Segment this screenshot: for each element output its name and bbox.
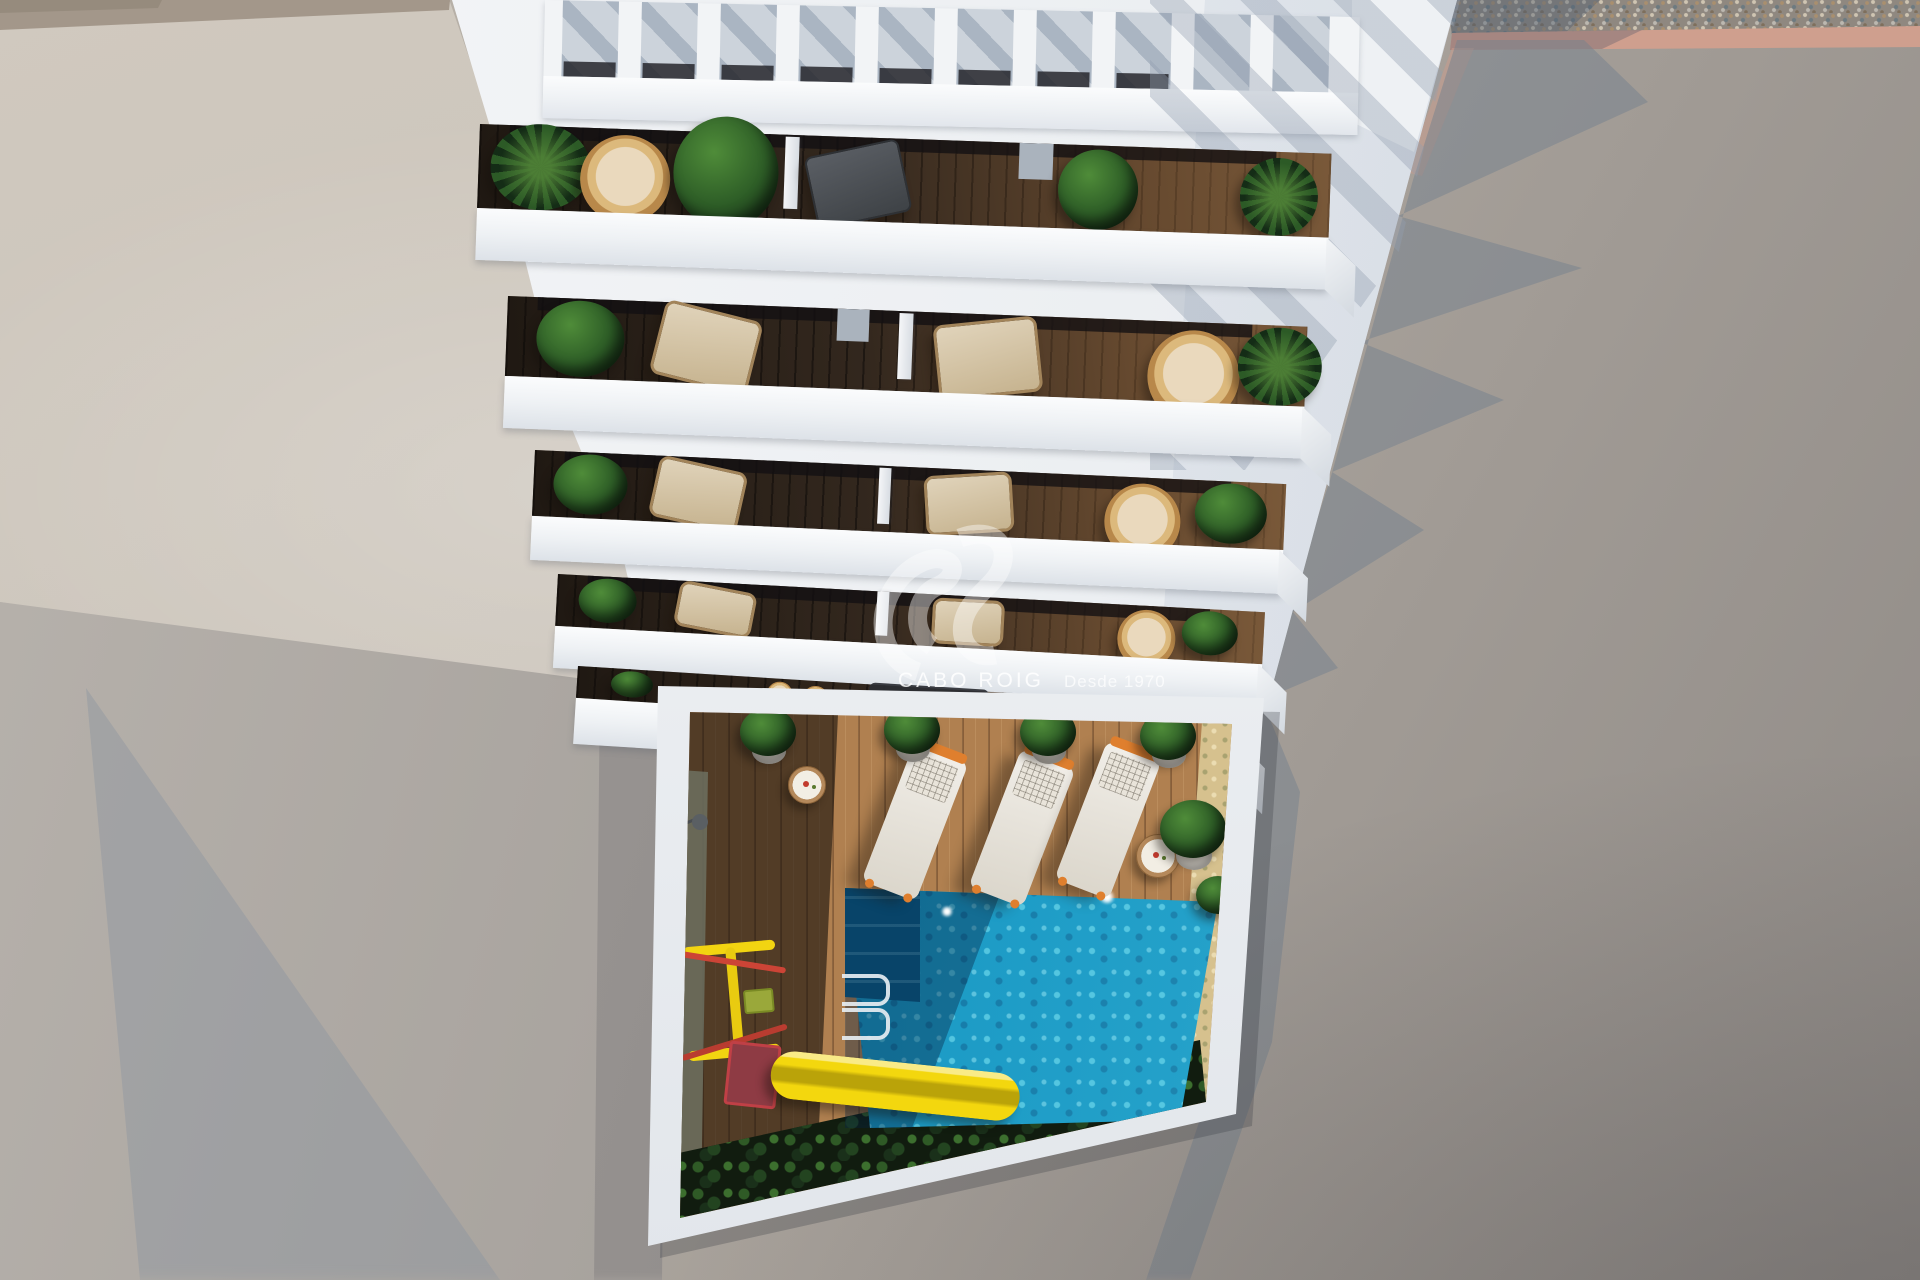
pool-ladder-icon — [842, 1008, 890, 1040]
pool-ladder-icon — [842, 974, 890, 1006]
pergola-slat-gap — [640, 2, 698, 79]
balcony-divider — [877, 468, 892, 524]
pergola-slat-gap — [956, 9, 1014, 86]
lounger-pillow — [1097, 750, 1152, 801]
pergola-slat-gap — [798, 5, 856, 82]
pergola-slat-gap — [719, 4, 777, 81]
deck-chair — [932, 315, 1043, 401]
side-table — [788, 766, 826, 804]
render-scene: CABO ROIG Desde 1970 — [0, 0, 1920, 1280]
potted-plant — [1160, 800, 1226, 858]
recessed-wall — [837, 309, 870, 342]
outdoor-shower-head — [692, 814, 708, 830]
pergola-slat-gap — [1035, 10, 1093, 87]
recessed-wall — [1018, 143, 1053, 180]
watermark-tagline: Desde 1970 — [1064, 672, 1166, 692]
watermark-brand: CABO ROIG — [898, 669, 1044, 693]
balcony-divider — [897, 313, 914, 379]
pergola-slat-gap — [561, 0, 619, 77]
watermark-logo-icon — [852, 520, 1042, 688]
watermark-text: CABO ROIG Desde 1970 — [898, 669, 1166, 693]
pool-glint — [940, 906, 954, 917]
pergola-slat-gap — [877, 7, 935, 84]
lounger-pillow — [1011, 758, 1066, 809]
swing-seat — [743, 988, 775, 1015]
potted-plant — [740, 708, 796, 756]
balcony-divider — [783, 137, 800, 209]
